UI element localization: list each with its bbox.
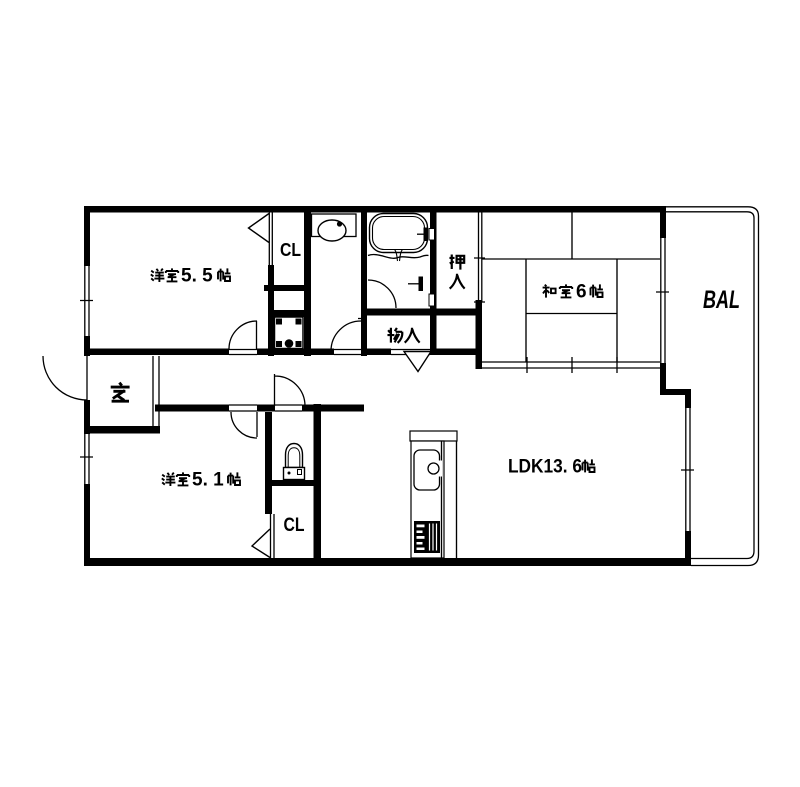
svg-text:CL: CL: [280, 240, 301, 260]
svg-text:LDK13. 6: LDK13. 6: [508, 457, 582, 478]
svg-text:5. 1: 5. 1: [192, 470, 224, 491]
svg-text:BAL: BAL: [703, 286, 740, 314]
svg-text:6: 6: [576, 282, 587, 303]
svg-text:5. 5: 5. 5: [181, 266, 213, 287]
svg-text:CL: CL: [284, 515, 305, 536]
